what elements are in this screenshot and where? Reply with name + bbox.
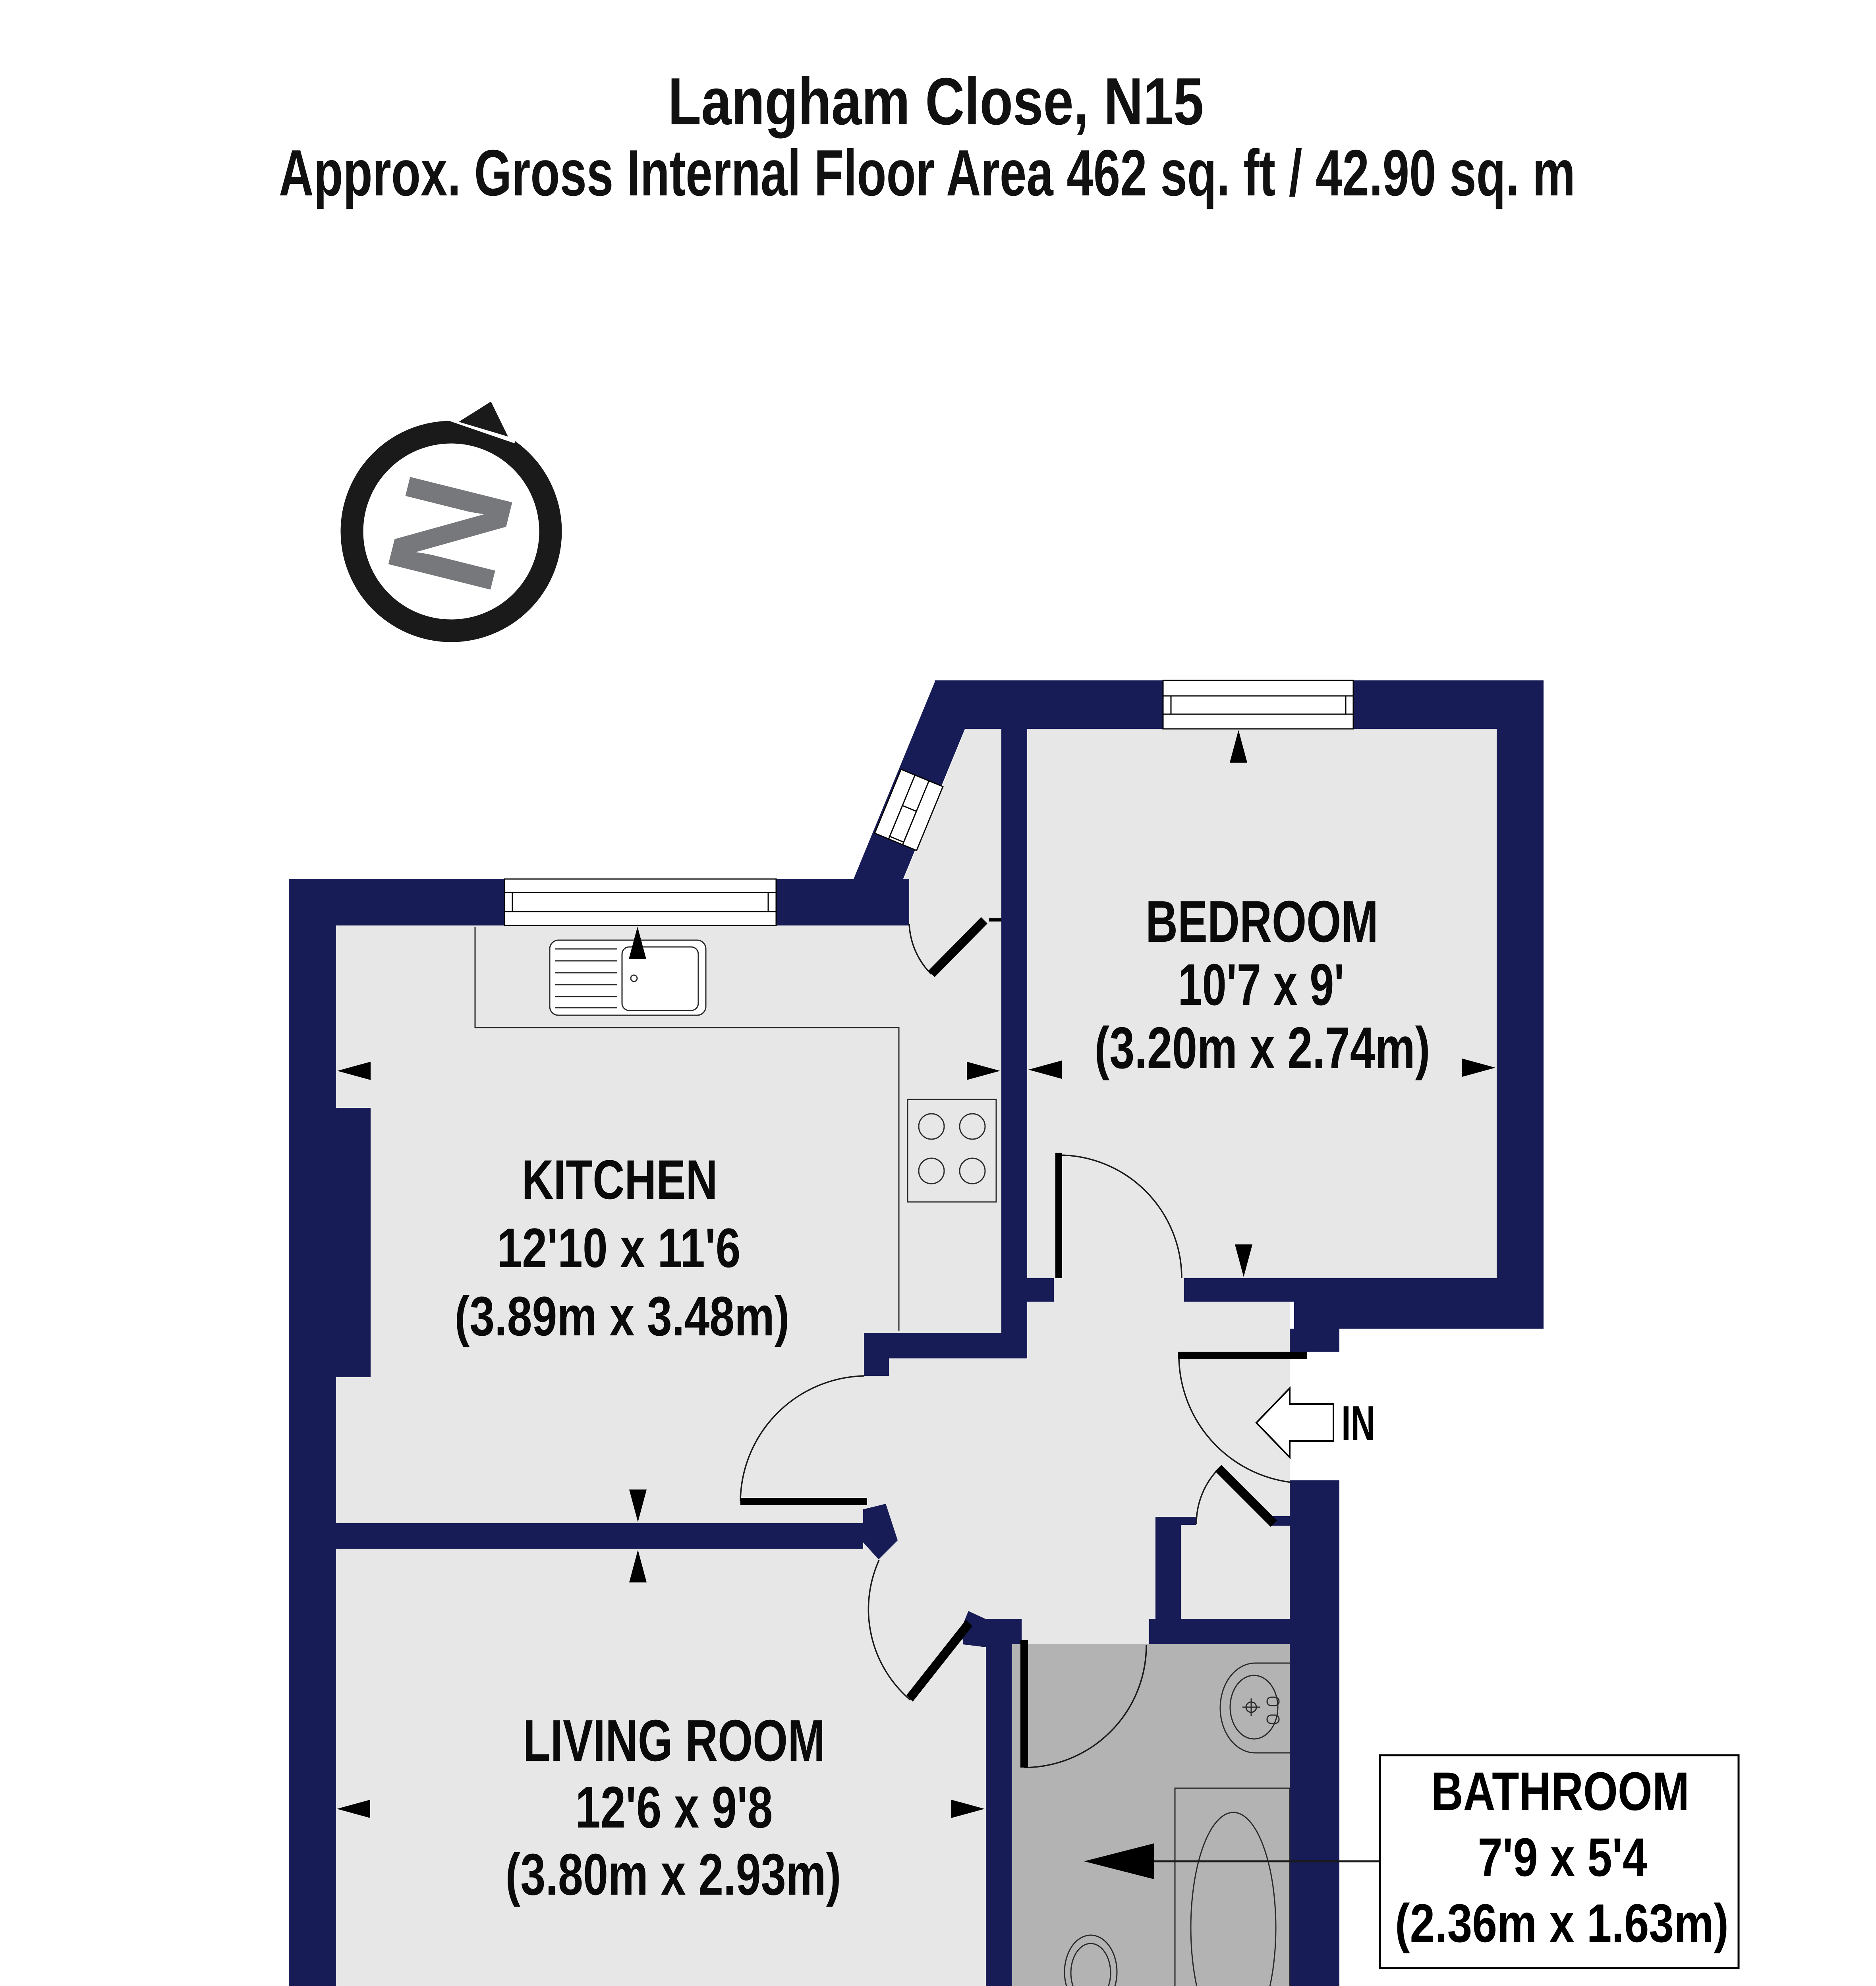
svg-text:7'9 x 5'4: 7'9 x 5'4	[1478, 1827, 1648, 1888]
svg-text:LIVING ROOM: LIVING ROOM	[523, 1708, 825, 1773]
svg-text:Approx. Gross Internal Floor A: Approx. Gross Internal Floor Area 462 sq…	[279, 136, 1575, 209]
svg-text:(3.80m x 2.93m): (3.80m x 2.93m)	[506, 1842, 841, 1907]
svg-text:(3.20m x 2.74m): (3.20m x 2.74m)	[1095, 1015, 1430, 1081]
svg-text:N: N	[354, 459, 547, 608]
svg-text:(2.36m x 1.63m): (2.36m x 1.63m)	[1395, 1893, 1729, 1954]
svg-text:BATHROOM: BATHROOM	[1431, 1761, 1689, 1822]
svg-text:12'10 x 11'6: 12'10 x 11'6	[497, 1217, 741, 1279]
svg-text:IN: IN	[1341, 1396, 1375, 1451]
svg-text:(3.89m x 3.48m): (3.89m x 3.48m)	[455, 1285, 790, 1347]
svg-text:10'7 x 9': 10'7 x 9'	[1178, 952, 1345, 1018]
svg-text:BEDROOM: BEDROOM	[1146, 889, 1378, 954]
svg-text:KITCHEN: KITCHEN	[522, 1148, 718, 1211]
svg-text:Langham Close, N15: Langham Close, N15	[668, 64, 1204, 139]
svg-text:12'6 x 9'8: 12'6 x 9'8	[576, 1775, 773, 1840]
